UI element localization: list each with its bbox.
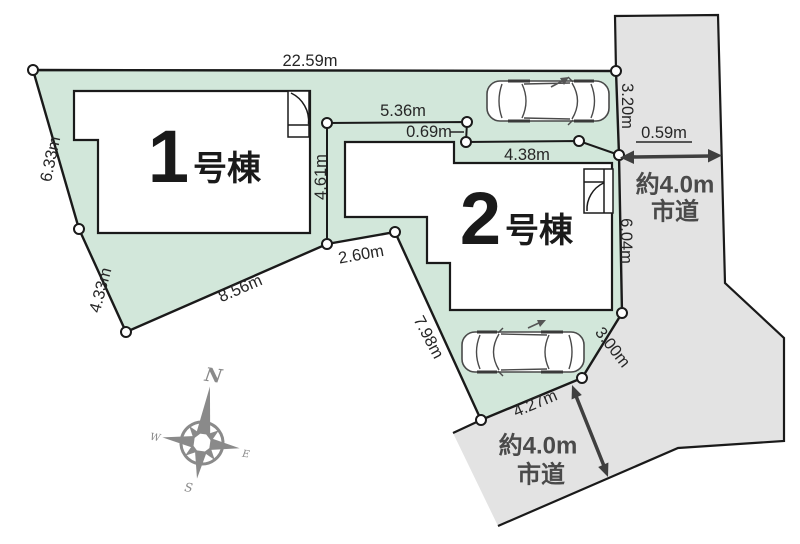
dimension-label-divider-vertical: 4.61m — [312, 154, 330, 200]
vertex-marker — [322, 239, 332, 249]
bottom-road-width-label: 約4.0m — [499, 431, 578, 459]
vertex-marker — [574, 136, 584, 146]
dimension-label-divider-top: 5.36m — [380, 102, 426, 120]
dimension-label-right-upper: 3.20m — [618, 83, 636, 129]
building-1-suffix: 号棟 — [193, 150, 262, 188]
building-1-outline — [74, 91, 310, 233]
vertex-marker — [322, 118, 332, 128]
vertex-marker — [74, 224, 84, 234]
vertex-marker — [617, 308, 627, 318]
vertex-marker — [121, 327, 131, 337]
vertex-marker — [461, 137, 471, 147]
compass-north-label: N — [202, 364, 224, 388]
dimension-label-right-offset: 0.59m — [641, 124, 687, 142]
vertex-marker — [390, 227, 400, 237]
building-1-number: 1 — [148, 115, 189, 198]
dimension-label-top: 22.59m — [282, 52, 337, 70]
building-2-suffix: 号棟 — [505, 212, 574, 250]
dimension-label-divider-right: 4.38m — [504, 146, 550, 164]
vertex-marker — [28, 65, 38, 75]
site-plan-page: 22.59m 6.33m 4.33m 8.56m 2.60m 4.61m 5.3… — [0, 0, 800, 544]
vertex-marker — [611, 66, 621, 76]
right-road-width-label: 約4.0m — [636, 170, 715, 198]
car-1-icon — [487, 77, 609, 125]
dimension-label-right-mid: 6.04m — [617, 218, 635, 264]
right-road-type-label: 市道 — [651, 197, 699, 225]
vertex-marker — [476, 415, 486, 425]
vertex-marker — [577, 373, 587, 383]
building-2-door-icon — [584, 169, 613, 213]
car-2-icon — [462, 328, 584, 376]
vertex-marker — [462, 117, 472, 127]
site-plan-svg: 22.59m 6.33m 4.33m 8.56m 2.60m 4.61m 5.3… — [0, 0, 800, 544]
bottom-road-type-label: 市道 — [517, 460, 565, 488]
building-1-door-icon — [288, 91, 309, 137]
building-2-number: 2 — [460, 177, 501, 260]
dimension-label-divider-step: 0.69m — [406, 123, 452, 141]
